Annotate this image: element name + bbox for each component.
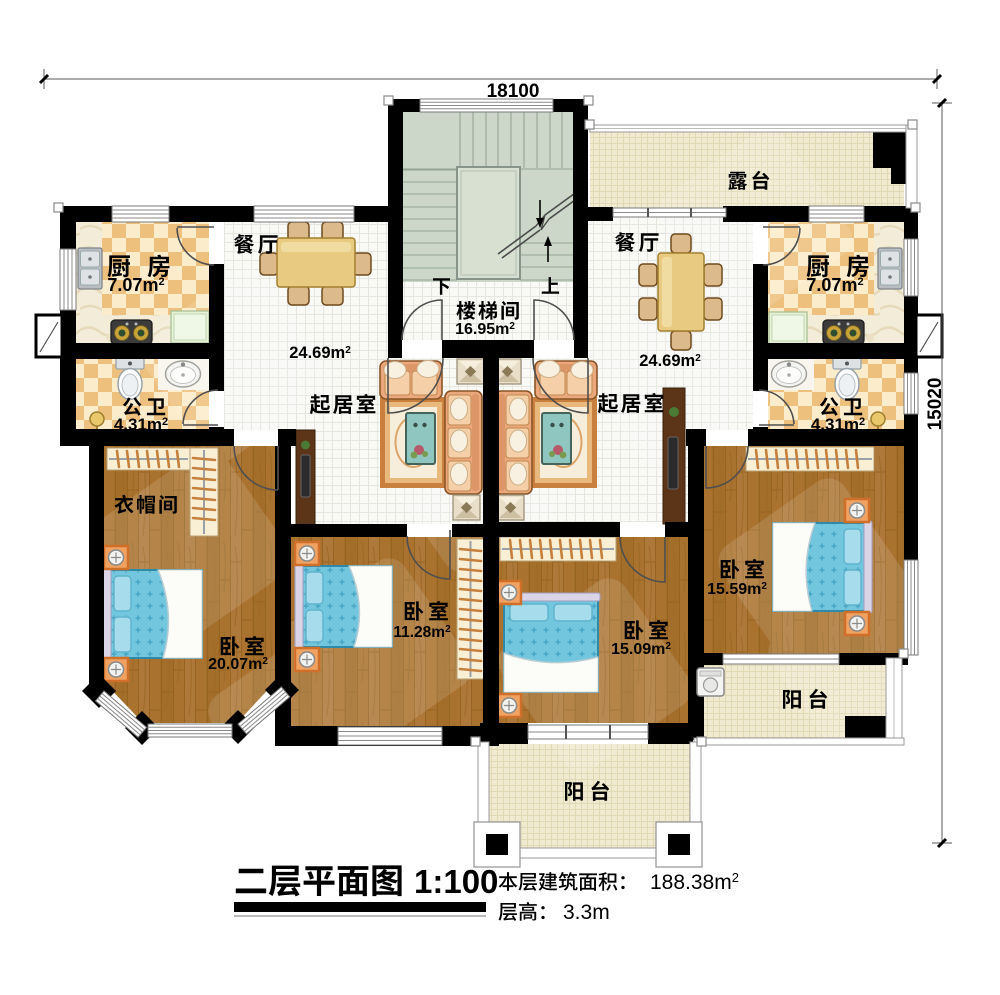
svg-text:15.09m2: 15.09m2 [611, 641, 671, 658]
svg-text:4.31m2: 4.31m2 [114, 415, 168, 434]
svg-text:11.28m2: 11.28m2 [393, 624, 451, 641]
svg-text:24.69m2: 24.69m2 [289, 344, 351, 362]
svg-text:7.07m2: 7.07m2 [806, 275, 863, 295]
svg-text:18100: 18100 [487, 81, 540, 102]
svg-text:7.07m2: 7.07m2 [107, 275, 164, 295]
svg-text:15020: 15020 [925, 378, 946, 431]
svg-text:1:100: 1:100 [414, 863, 498, 900]
svg-text:20.07m2: 20.07m2 [208, 656, 268, 673]
svg-text:4.31m2: 4.31m2 [811, 415, 865, 434]
svg-text:3.3m: 3.3m [563, 901, 610, 924]
svg-text:188.38m2: 188.38m2 [650, 870, 739, 894]
svg-text:16.95m2: 16.95m2 [455, 321, 515, 338]
svg-text:15.59m2: 15.59m2 [707, 581, 767, 598]
svg-text:24.69m2: 24.69m2 [639, 352, 701, 370]
